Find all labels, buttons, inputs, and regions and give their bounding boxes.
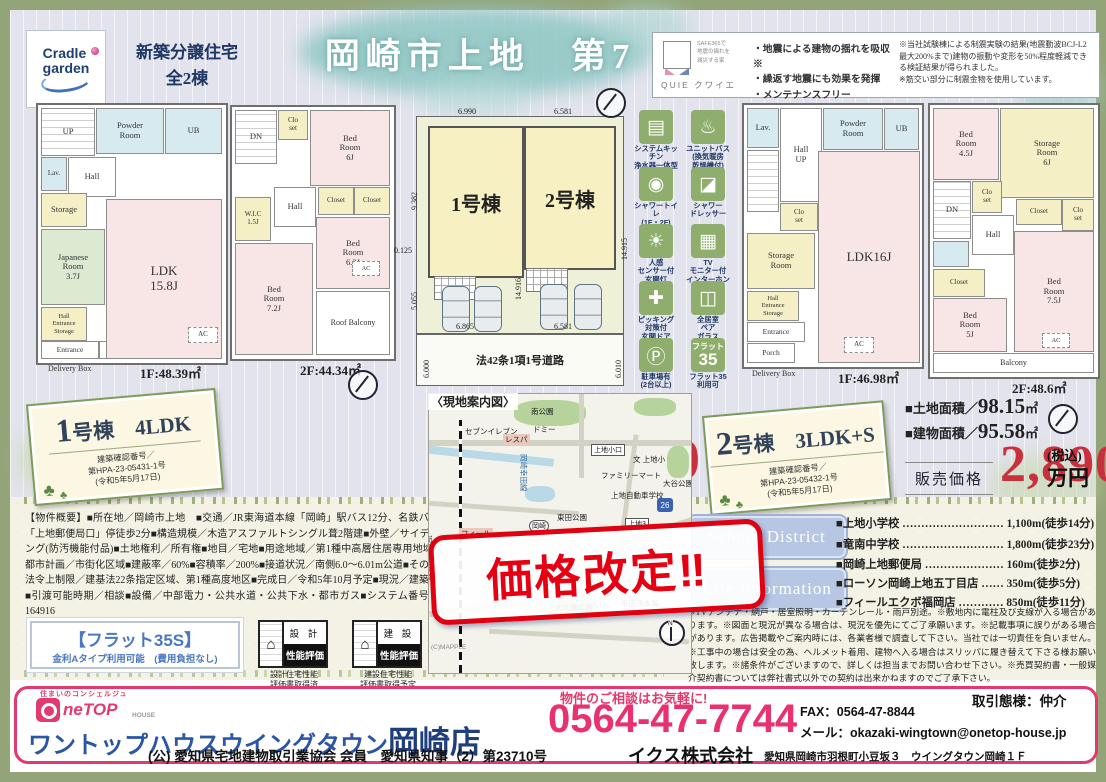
room-label: Storage (41, 193, 87, 227)
toilet-icon: ◉ (639, 167, 673, 201)
room-label: Storage Room (747, 233, 815, 289)
room-label: Lav. (41, 157, 67, 191)
room-label: DN (933, 181, 971, 239)
room-label: Clo set (278, 110, 308, 140)
map-poi: レスパ (503, 434, 530, 445)
room-label: AC (188, 327, 218, 343)
north-label: N (668, 620, 673, 627)
price-revision-stamp: 価格改定‼ (428, 518, 766, 625)
room-label: Lav. (747, 108, 779, 148)
parking-icon: Ⓟ (639, 338, 673, 372)
map-title: 〈現地案内図〉 (428, 393, 518, 410)
room-label: Bed Room 5J (933, 298, 1007, 352)
map-poi: 南公園 (531, 406, 554, 417)
company-address: 愛知県岡崎市羽根町小豆坂３ ウイングタウン岡崎１Ｆ (764, 749, 1027, 764)
room-label: Powder Room (823, 108, 883, 150)
design-performance-badge: ⌂ 設 計 性能評価 設計住宅性能 評価書取得済 (258, 620, 328, 668)
dim-label: 6.581 (554, 107, 572, 116)
room-label: AC (1042, 333, 1070, 348)
room-label: Powder Room (96, 108, 164, 154)
room-label: LDK16J (818, 151, 920, 363)
floorplan-unit2-2f: Bed Room 4.5J Storage Room 6J DN Clo set… (928, 103, 1100, 379)
map-poi: ドミー (533, 424, 556, 435)
car-icon (474, 286, 502, 332)
unit2-land-area: ■土地面積／98.15㎡ (905, 394, 1038, 419)
map-poi: 大谷公園 (663, 478, 692, 489)
feature-shower-toilet: ◉ シャワートイレ (1F・2F) (631, 167, 681, 227)
quie-safe-text: SAFE365で 地震の揺れを 減災する家 (697, 40, 730, 65)
flat35-icon: フラット 35 (691, 338, 725, 372)
room-label: Bed Room 4.5J (933, 108, 999, 180)
room-label: UB (165, 108, 222, 154)
room-label: Clo set (1062, 199, 1094, 231)
room-label: Hall Entrance Storage (41, 307, 87, 341)
room-label: Closet (318, 187, 354, 215)
feature-sensor-light: ☀ 人感 センサー付 玄関灯 (631, 224, 681, 284)
area-unit2-1f: 1F:46.98㎡ (838, 368, 899, 387)
unit1-badge-card: 1号棟 4LDK 建築確認番号／ 第HPA-23-05431-1号 (令和5年5… (26, 388, 224, 506)
school-district-list: ■上地小学校 ……………………… 1,100m(徒歩14分) ■竜南中学校 ……… (836, 514, 1098, 556)
map-credit: (C)MAPPLE (431, 644, 466, 651)
map-poi: 上地自動車学校 (611, 490, 664, 501)
brand-dot-icon (91, 47, 99, 55)
quie-panel: SAFE365で 地震の揺れを 減災する家 QUIE クワイエ ・地震による建物… (652, 32, 1100, 98)
house-icon: ⌂ (260, 622, 284, 666)
room-label: Entrance (747, 322, 805, 342)
map-poi: ファミリーマート (601, 470, 661, 481)
dim-label: 9.382 (410, 192, 419, 210)
cradle-garden-logo: Cradle garden (26, 30, 106, 108)
page-title: 岡崎市上地 第7 (300, 28, 660, 79)
association-license: (公) 愛知県宅地建物取引業協会 会員 愛知県知事（2）第23710号 (148, 745, 547, 765)
clover-icon: ♣ (43, 480, 56, 501)
deal-type: 取引態様：仲介 (972, 690, 1067, 710)
room-label: DN (235, 110, 277, 164)
flat35s-note: 金利Aタイプ利用可能 (費用負担なし) (32, 651, 238, 665)
siteplan-unit2: 2号棟 (524, 126, 616, 270)
area-unit1-1f: 1F:48.39㎡ (140, 363, 201, 382)
phone-number: 0564-47-7744 (548, 697, 797, 742)
room-label: Storage Room 6J (1000, 108, 1094, 198)
room-label: Clo set (972, 181, 1002, 213)
room-label: Bed Room 7.2J (235, 243, 313, 355)
delivery-box-label: Delivery Box (752, 369, 795, 378)
dim-label: 5.055 (410, 292, 419, 310)
bath-icon: ♨ (691, 110, 725, 144)
flyer-page: Cradle garden 新築分譲住宅 全2棟 岡崎市上地 第7 SAFE36… (0, 0, 1106, 782)
property-overview: 【物件概要】■所在地／岡崎市上地 ■交通／JR東海道本線「岡崎」駅バス12分、名… (25, 511, 439, 620)
life-information-list: ■岡崎上地郵便局 ………………… 160m(徒歩2分) ■ローソン岡崎上地五丁目… (836, 556, 1098, 614)
flat35s-title: 【フラット35S】 (32, 626, 238, 651)
unit2-price-label: 販売価格 (905, 462, 993, 495)
map-road (579, 394, 584, 478)
room-label: Closet (354, 187, 390, 215)
room-label: W.I.C 1.5J (235, 197, 271, 241)
road-label: 法42条1項1号道路 (416, 334, 624, 386)
room-label: Closet (933, 269, 985, 297)
room-label: Porch (747, 343, 795, 363)
park-area (634, 398, 676, 416)
floorplan-unit1-2f: DN Clo set Bed Room 6J W.I.C 1.5J Hall C… (230, 105, 396, 361)
room-label: Hall Entrance Storage (747, 291, 799, 321)
room-label: Balcony (933, 353, 1094, 373)
room-label: Japanese Room 3.7J (41, 229, 105, 305)
dim-label: 14.915 (620, 238, 629, 260)
clover-icon: ♣ (59, 489, 67, 502)
room-label: AC (352, 261, 380, 276)
quie-brand: QUIE クワイエ (661, 79, 736, 91)
site-plan: 1号棟 2号棟 法42条1項1号道路 6.990 6.581 9.382 0.1… (408, 100, 630, 388)
room-label: Hall (972, 215, 1014, 255)
window-icon: ◫ (691, 281, 725, 315)
sensor-light-icon: ☀ (639, 224, 673, 258)
key-icon: ✚ (639, 281, 673, 315)
feature-unitbath: ♨ ユニットバス (換気暖房 乾燥機付) (683, 110, 733, 170)
dim-label: 14.916 (514, 278, 523, 300)
feature-door-lock: ✚ ピッキング 対策付 玄関ドア (631, 281, 681, 341)
compass-icon (348, 370, 378, 400)
kitchen-icon: ▤ (639, 110, 673, 144)
compass-icon (596, 88, 626, 118)
quie-house-icon (663, 41, 691, 69)
room-label: AC (844, 337, 874, 353)
floorplan-unit1-1f: UP Powder Room UB Lav. Hall Storage Japa… (36, 103, 228, 365)
map-poi: 文 上地小 (633, 454, 665, 465)
construction-performance-badge: ⌂ 建 設 性能評価 建設住宅性能 評価書取得予定 (352, 620, 422, 668)
feature-shower-dresser: ◪ シャワー ドレッサー (683, 167, 733, 219)
delivery-box-label: Delivery Box (48, 364, 91, 373)
map-compass-icon: N (659, 620, 685, 646)
park-area (667, 446, 689, 478)
pond (525, 486, 555, 502)
room-label: Hall UP (780, 108, 822, 202)
floorplan-unit2-1f: Lav. Hall UP Powder Room UB Clo set Stor… (742, 103, 924, 369)
dim-label: 6.000 (422, 360, 431, 378)
room-label: UB (884, 108, 919, 150)
quie-note: ※当社試験棟による制震実験の結果(地震動波BCJ-L2最大200%まで)建物の振… (899, 39, 1093, 85)
route-26-badge: 26 (657, 498, 673, 512)
dim-label: 0.125 (394, 246, 412, 255)
room-label: Bed Room 6.3J (316, 217, 390, 289)
feature-tv-intercom: ▦ TV モニター付 インターホン (683, 224, 733, 284)
compass-icon (1048, 404, 1078, 434)
map-road (429, 440, 691, 446)
feature-icons: ▤ システムキッチン 浄水器一体型 水栓 ♨ ユニットバス (換気暖房 乾燥機付… (631, 110, 733, 392)
dim-label: 6.865 (456, 322, 474, 331)
dim-label: 6.010 (614, 360, 623, 378)
road-name: 岡崎幸田線 (518, 454, 529, 492)
map-poi: 上地小口 (591, 444, 625, 456)
room-label: Hall (68, 157, 116, 197)
feature-parking: Ⓟ 駐車場有 (2台以上) (631, 338, 681, 390)
room-label: Closet (1016, 199, 1062, 225)
feature-flat35: フラット 35 フラット35 利用可 (683, 338, 733, 390)
dresser-icon: ◪ (691, 167, 725, 201)
river (428, 445, 554, 467)
lavatory (933, 241, 969, 267)
feature-pair-glass: ◫ 全居室 ペア ガラス (683, 281, 733, 341)
clover-icon: ♣ (735, 499, 743, 512)
subtitle: 新築分譲住宅 全2棟 (112, 40, 262, 91)
map-poi: 東田公園 (557, 512, 587, 523)
flat35s-panel: 【フラット35S】 金利Aタイプ利用可能 (費用負担なし) (30, 621, 240, 669)
room-label: Clo set (780, 203, 818, 231)
dim-label: 6.581 (554, 322, 572, 331)
room-label: Bed Room 6J (310, 110, 390, 186)
clover-icon: ♣ (719, 490, 732, 511)
brand-line1: Cradle (43, 45, 87, 61)
siteplan-unit1: 1号棟 (428, 126, 524, 278)
stairs (747, 150, 779, 212)
house-icon: ⌂ (354, 622, 378, 666)
room-label: Roof Balcony (316, 291, 390, 355)
dim-label: 6.990 (458, 107, 476, 116)
room-label: Entrance (41, 341, 99, 359)
unit2-badge-card: 2号棟 3LDK+S 建築確認番号／ 第HPA-23-05432-1号 (令和5… (702, 400, 892, 515)
company-name: イクス株式会社 (628, 742, 753, 768)
intercom-icon: ▦ (691, 224, 725, 258)
room-label: UP (41, 108, 95, 156)
room-label: Hall (274, 187, 316, 227)
car-icon (574, 284, 602, 330)
quie-features: ・地震による建物の揺れを吸収※ ・繰返す地震にも効果を発揮 ・メンテナンスフリー (753, 42, 895, 103)
disclaimer-text: ※TVアンテナ・網戸・居室照明・カーテンレール・雨戸別途。※敷地内に電柱及び支線… (688, 606, 1096, 685)
unit2-price-unit: (税込)万円 (1047, 448, 1089, 492)
